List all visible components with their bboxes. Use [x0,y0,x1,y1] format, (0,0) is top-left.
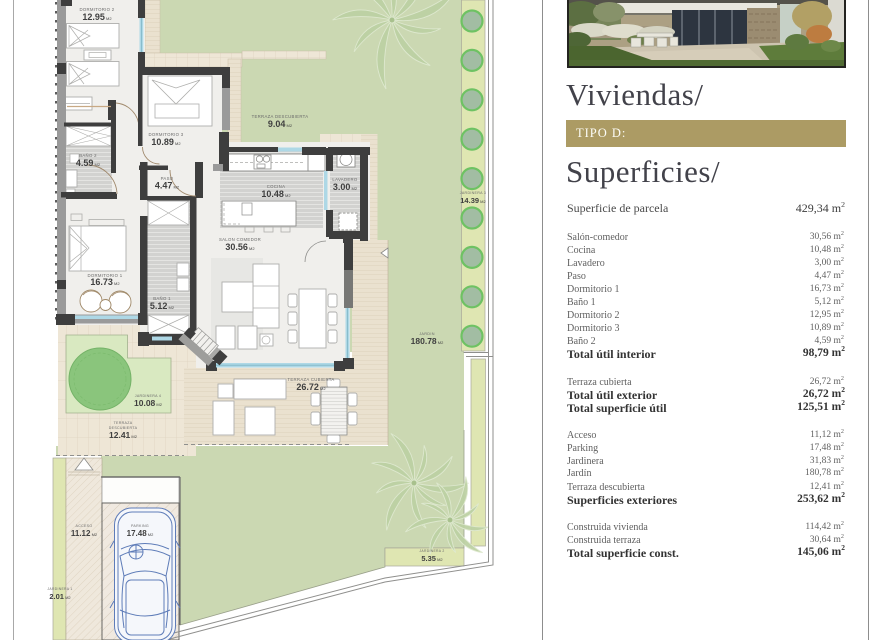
svg-text:JARDINERA 1: JARDINERA 1 [47,587,72,591]
svg-text:JARDINERA 2: JARDINERA 2 [419,549,444,553]
svg-text:ACCESO: ACCESO [76,524,93,528]
svg-text:JARDINERA 3: JARDINERA 3 [460,191,486,195]
svg-text:PARKING: PARKING [131,524,149,528]
